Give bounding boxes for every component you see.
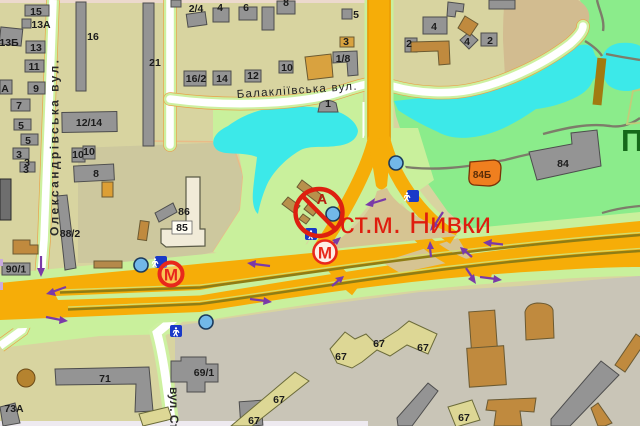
svg-text:16: 16 [87, 31, 99, 43]
svg-text:8: 8 [283, 0, 289, 9]
svg-text:1: 1 [325, 98, 331, 110]
svg-text:84: 84 [557, 158, 569, 170]
svg-text:А: А [317, 192, 328, 208]
svg-text:71: 71 [99, 373, 111, 385]
svg-text:67: 67 [458, 412, 470, 424]
svg-text:5: 5 [25, 135, 31, 147]
svg-text:4: 4 [217, 2, 223, 14]
svg-text:8: 8 [93, 168, 99, 180]
svg-text:67: 67 [335, 351, 347, 363]
svg-text:4: 4 [431, 21, 437, 33]
svg-text:3: 3 [343, 36, 349, 48]
svg-text:84Б: 84Б [473, 170, 491, 181]
svg-text:5: 5 [18, 120, 24, 132]
svg-text:9: 9 [33, 83, 39, 95]
svg-text:5: 5 [353, 9, 359, 21]
svg-text:13А: 13А [31, 19, 51, 31]
svg-text:67: 67 [273, 394, 285, 406]
svg-text:7: 7 [16, 100, 22, 112]
svg-text:85: 85 [176, 222, 188, 234]
svg-text:Олександрівська вул.: Олександрівська вул. [48, 60, 62, 236]
svg-text:10: 10 [281, 62, 293, 74]
svg-text:4: 4 [464, 36, 470, 48]
svg-text:А: А [1, 83, 9, 95]
svg-text:86: 86 [178, 206, 190, 218]
svg-text:69/1: 69/1 [194, 367, 215, 379]
svg-text:16/2: 16/2 [186, 73, 207, 85]
svg-text:21: 21 [149, 57, 161, 69]
svg-text:10: 10 [83, 146, 95, 158]
svg-text:М: М [318, 244, 332, 263]
svg-text:П: П [621, 123, 640, 158]
svg-text:1/8: 1/8 [336, 53, 351, 65]
svg-text:67: 67 [417, 342, 429, 354]
svg-text:3: 3 [16, 149, 22, 161]
svg-text:13Б: 13Б [0, 37, 19, 49]
svg-text:6: 6 [243, 2, 249, 14]
svg-text:67: 67 [373, 338, 385, 350]
svg-text:73А: 73А [4, 403, 24, 415]
svg-text:3: 3 [23, 164, 29, 176]
svg-text:13: 13 [30, 42, 42, 54]
svg-text:12: 12 [247, 70, 259, 82]
svg-text:67: 67 [248, 415, 260, 426]
svg-text:М: М [164, 266, 178, 285]
svg-text:ст.м. Нивки: ст.м. Нивки [340, 207, 491, 240]
svg-text:14: 14 [216, 73, 228, 85]
svg-text:11: 11 [28, 61, 39, 73]
svg-text:90/1: 90/1 [6, 264, 27, 276]
svg-text:12/14: 12/14 [76, 117, 102, 129]
svg-text:2: 2 [406, 38, 412, 50]
svg-text:88/2: 88/2 [60, 228, 81, 240]
svg-text:15: 15 [30, 6, 42, 18]
svg-text:вул. Ст: вул. Ст [167, 387, 181, 426]
svg-text:2: 2 [487, 35, 493, 47]
svg-text:2/4: 2/4 [189, 3, 204, 15]
